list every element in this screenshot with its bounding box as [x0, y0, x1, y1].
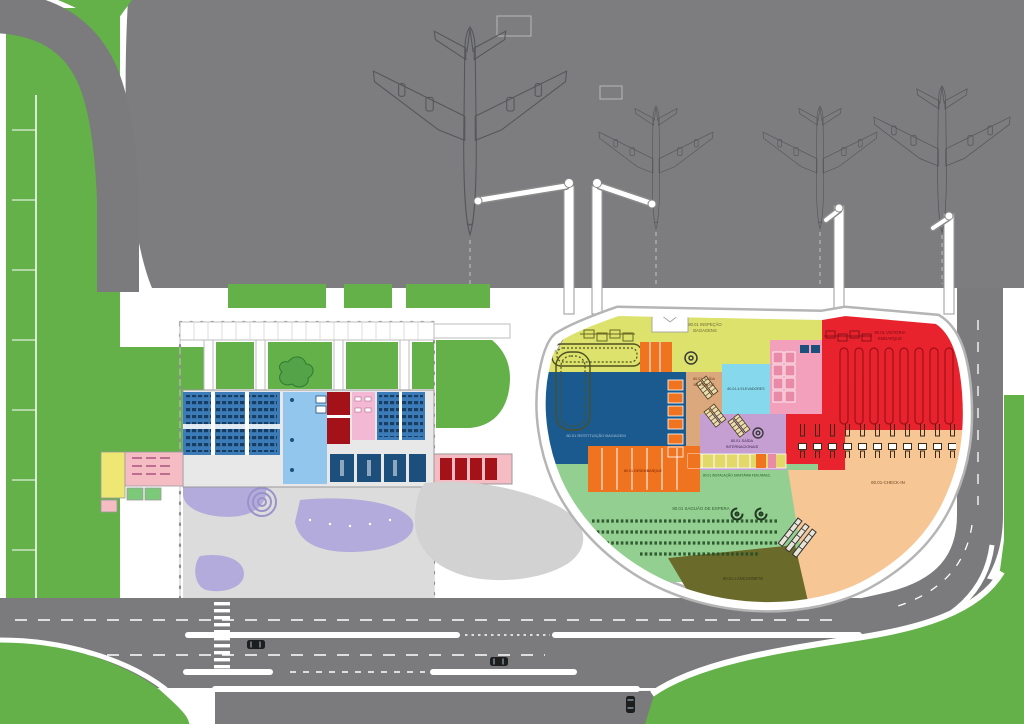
navy-rooms [330, 454, 426, 482]
label-restituicao: 80.01 RESTITUIÇÃO BAGAGEM [566, 433, 625, 438]
annex-small-room [101, 500, 117, 512]
green-strip-1 [228, 284, 326, 308]
annex-pink-rooms [125, 452, 183, 486]
zone-elevators [722, 364, 770, 418]
annex-green-room [145, 488, 161, 500]
terminal-zones: 80.01 INSPEÇÃO BAGAGENS 80.01 VISTORIA E… [528, 298, 980, 614]
west-annex [101, 452, 183, 512]
road-lower [215, 692, 640, 724]
jet-bridge-stem-4 [944, 214, 954, 314]
check-in-counters [792, 424, 956, 458]
label-inspecao-1: 80.01 INSPEÇÃO [688, 322, 722, 327]
jet-bridge-stem-1 [564, 186, 574, 314]
walkway-stem [204, 340, 213, 392]
label-inspecao-2: BAGAGENS [693, 328, 717, 333]
label-vistoria-2: EMBARQUE [878, 336, 902, 341]
label-saida-nac-1: 80.01 SAÍDA [693, 377, 715, 381]
terminal-building: 80.01 INSPEÇÃO BAGAGENS 80.01 VISTORIA E… [528, 298, 980, 614]
annex-green-room [127, 488, 143, 500]
label-lanchonete: 80.01 LANCHONETE [723, 576, 763, 581]
label-checkin: 80.01-CHECK-IN [871, 480, 905, 485]
courtyard-green [346, 342, 398, 389]
car [490, 657, 508, 666]
green-strip-3 [406, 284, 490, 308]
stall-block-orange [640, 342, 672, 372]
label-sanitaria: 80.01 INSTALAÇÃO SANITÁRIA FEM./MASC. [703, 473, 771, 478]
green-strips [228, 284, 490, 308]
green-strip-2 [344, 284, 392, 308]
green-east-of-building [436, 340, 510, 428]
walkway-stem [256, 340, 265, 392]
plaza-lake [415, 482, 583, 580]
label-elevadores: 80.01-4 ELEVADORES [727, 387, 765, 391]
label-vistoria-1: 80.01 VISTORIA [874, 330, 905, 335]
label-desembarque: 80.01 DESEMBARQUE [624, 469, 663, 473]
courtyard-green [412, 342, 434, 389]
site-plan: 80.01 INSPEÇÃO BAGAGENS 80.01 VISTORIA E… [0, 0, 1024, 724]
car [626, 696, 635, 713]
apron-surface [126, 0, 1024, 288]
label-saida-nac-2: NACIONAIS [694, 383, 715, 387]
apron [126, 0, 1024, 288]
label-saida-int-1: 80.01-SAÍDA [731, 439, 754, 443]
building-blocks [183, 390, 434, 487]
courtyard-green [216, 342, 254, 389]
annex-yellow-room [101, 452, 125, 498]
navy-kiosk [800, 345, 809, 353]
walkway-stem [334, 340, 343, 392]
navy-kiosk [811, 345, 820, 353]
car [247, 640, 265, 649]
label-saida-int-2: INTERNACIONAIS [726, 445, 759, 449]
jet-bridge-stem-2 [592, 186, 602, 314]
jet-bridge-stem-3 [834, 206, 844, 312]
shops-strip [688, 454, 786, 468]
east-annex [434, 454, 512, 484]
label-saguao: 80.01 SAGUÃO DE ESPERA [672, 506, 729, 511]
walkway-stem [400, 340, 409, 392]
